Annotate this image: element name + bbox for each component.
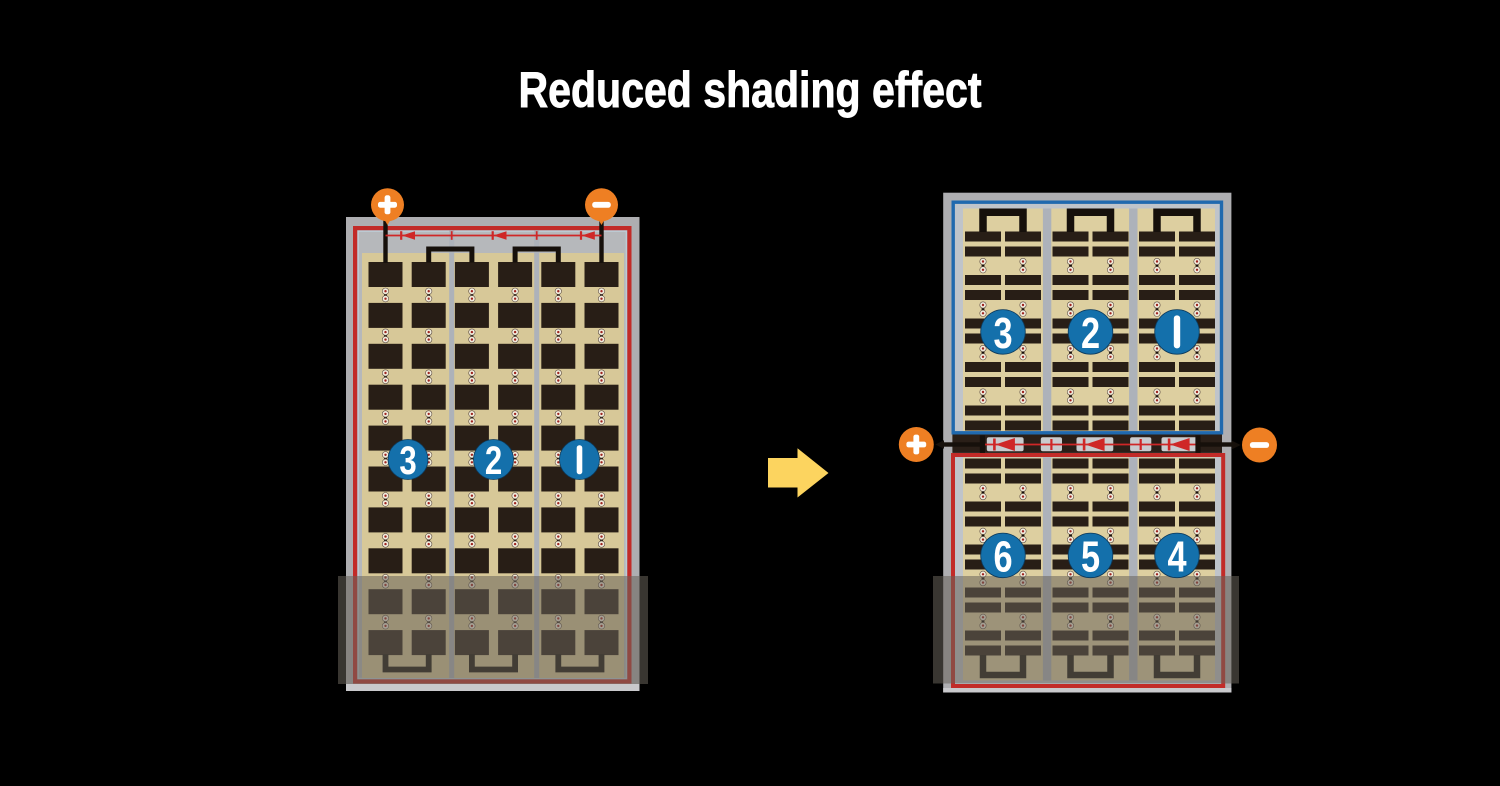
svg-text:3: 3 xyxy=(993,309,1012,358)
svg-text:2: 2 xyxy=(1081,309,1100,358)
svg-text:2: 2 xyxy=(485,438,502,483)
svg-text:4: 4 xyxy=(1167,532,1186,581)
svg-text:6: 6 xyxy=(993,532,1012,581)
svg-text:3: 3 xyxy=(399,438,416,483)
svg-text:5: 5 xyxy=(1081,532,1100,581)
svg-text:Reduced shading effect: Reduced shading effect xyxy=(519,62,982,118)
